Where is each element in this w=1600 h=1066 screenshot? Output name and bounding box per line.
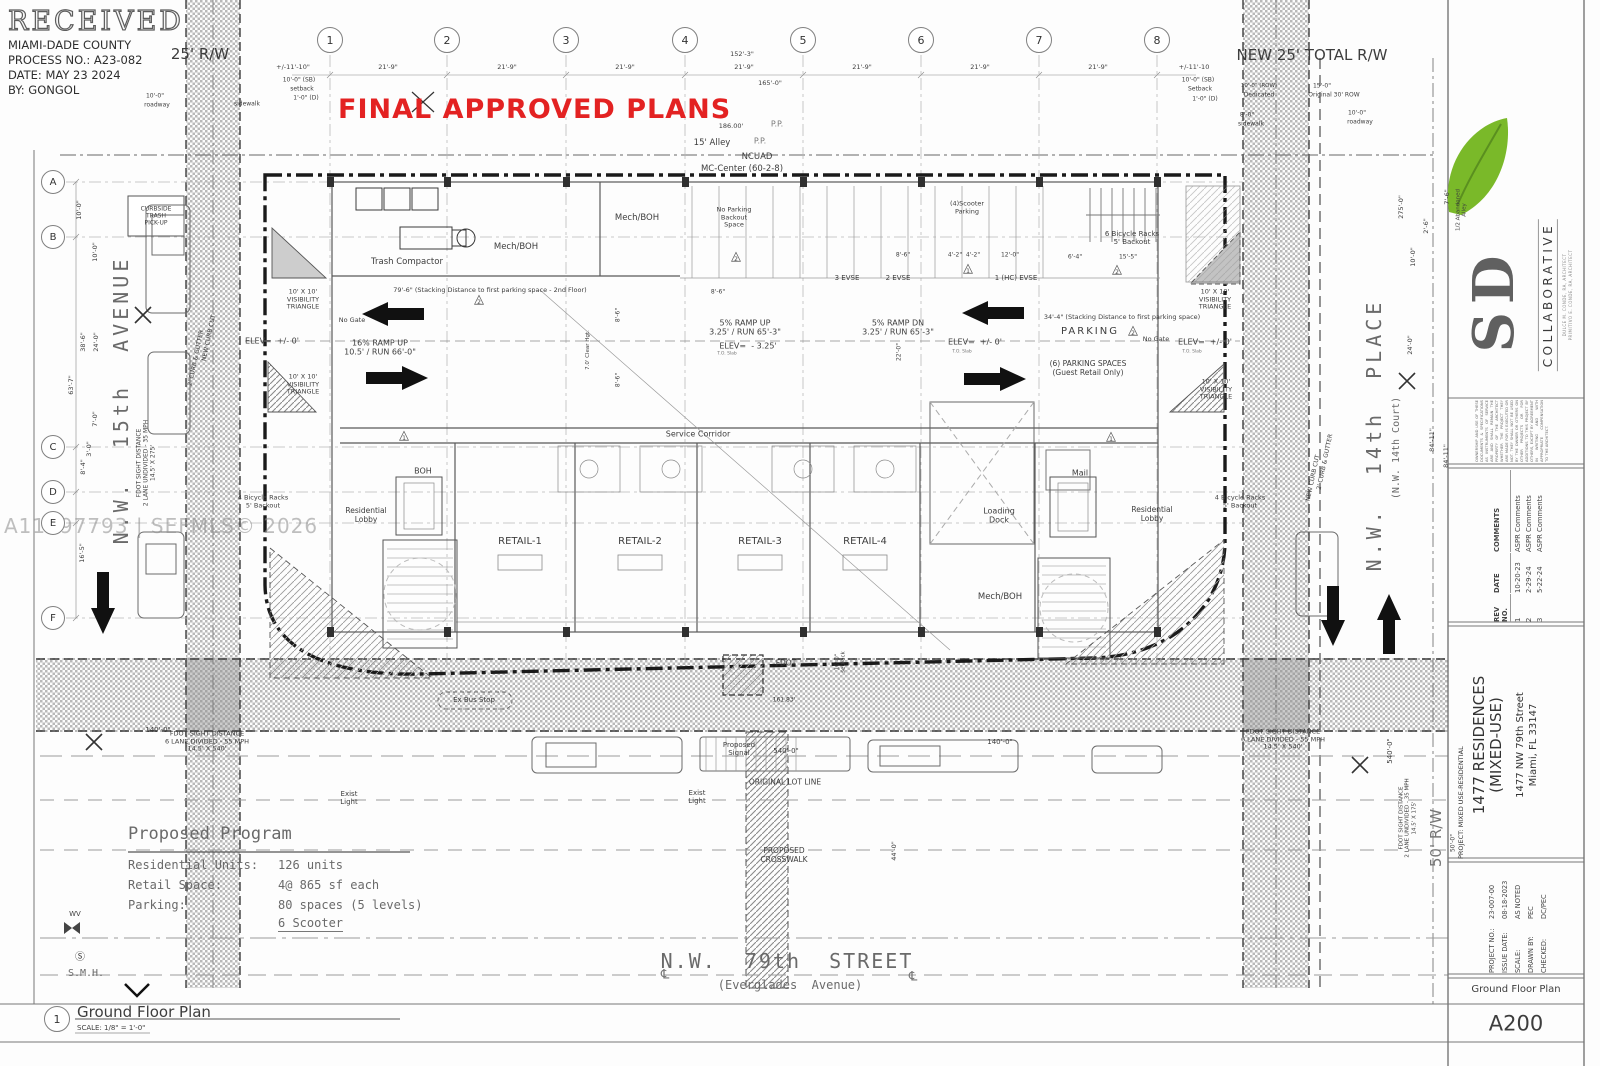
- visibility-triangle-label: 10' X 10' VISIBILITY TRIANGLE: [1199, 289, 1231, 312]
- keynote-2: △2: [1124, 325, 1142, 341]
- left-dim: 10'-0": [92, 242, 100, 262]
- received-stamp: RECEIVED MIAMI-DADE COUNTY PROCESS NO.: …: [8, 6, 184, 97]
- bus-stop-label: Ex Bus Stop: [453, 696, 495, 704]
- grid-col-7: 7: [1026, 27, 1052, 53]
- no-gate-label: No Gate: [1143, 336, 1169, 344]
- grid-row-e: E: [41, 511, 65, 535]
- exist-light-label: Exist Light: [688, 789, 705, 806]
- alley-length: 186.00': [719, 123, 744, 131]
- no-gate-label: No Gate: [339, 317, 365, 325]
- dim-bay: 21'-9": [1088, 64, 1108, 72]
- program-title: Proposed Program: [128, 824, 292, 844]
- visibility-triangle-label: 10' X 10' VISIBILITY TRIANGLE: [287, 289, 319, 312]
- visibility-triangle-label: 10' X 10' VISIBILITY TRIANGLE: [287, 374, 319, 397]
- program-label: Parking:: [128, 898, 186, 912]
- lot-length-label: 161.83': [773, 696, 796, 703]
- rw-right-label: NEW 25' TOTAL R/W: [1237, 47, 1388, 65]
- grid-col-2: 2: [434, 27, 460, 53]
- dim-44-0: 44'-0": [891, 841, 899, 861]
- dim-50-0: 50'-0": [1449, 834, 1456, 852]
- street-name-left: N.W. 15th AVENUE: [110, 256, 134, 545]
- grid-col-5: 5: [790, 27, 816, 53]
- boh-label: BOH: [414, 466, 432, 475]
- dim-8-6: 8'-6": [711, 288, 725, 295]
- dim-22-0: 22'-0": [895, 343, 902, 361]
- info-value: AS NOTED: [1514, 867, 1522, 919]
- evse-hc-label: 1 (HC) EVSE: [995, 274, 1038, 282]
- original-lot-line-label: ORIGINAL LOT LINE: [749, 779, 821, 788]
- info-label: CHECKED:: [1540, 919, 1548, 973]
- setback-sb-right: 10'-0" (SB): [1182, 76, 1215, 83]
- program-label: Residential Units:: [128, 858, 258, 872]
- water-valve-label: WV: [69, 910, 81, 918]
- info-label: SCALE:: [1514, 919, 1522, 973]
- alley-label: 15' Alley: [694, 138, 731, 148]
- roadway-left: roadway: [144, 101, 170, 108]
- stacking-79-note: 79'-6" (Stacking Distance to first parki…: [393, 287, 586, 295]
- dim-15-5: 15'-5": [1119, 253, 1137, 260]
- elev-neg-label: ELEV= - 3.25': [719, 341, 776, 350]
- rev-cell: 10-20-23: [1514, 553, 1522, 593]
- grid-row-a: A: [41, 170, 65, 194]
- fdot-label: FDOT: [776, 660, 797, 669]
- left-dim: 10'-0": [76, 200, 84, 220]
- project-address: 1477 NW 79th Street Miami, FL 33147: [1514, 631, 1540, 859]
- trash-compactor-label: Trash Compactor: [371, 257, 443, 267]
- orig-row-dim: 15'-0": [1313, 82, 1331, 89]
- plan-title: Ground Floor Plan: [77, 1004, 211, 1022]
- setback-d-right: 1'-0" (D): [1192, 95, 1217, 102]
- mail-label: Mail: [1072, 468, 1088, 477]
- ramp-up-5-label: 5% RAMP UP 3.25' / RUN 65'-3": [709, 319, 781, 338]
- info-label: DRAWN BY:: [1527, 919, 1535, 973]
- smh-label: S.M.H.: [68, 968, 104, 980]
- revision-table: REV NO. DATE COMMENTS 1 10-20-23 ASPR Co…: [1457, 470, 1579, 622]
- bike-racks-6-label: 6 Bicycle Racks 5' Backout: [1105, 230, 1159, 247]
- program-value: 80 spaces (5 levels): [278, 898, 423, 912]
- sheet-number: A200: [1489, 1012, 1543, 1037]
- evse-3-label: 3 EVSE: [835, 274, 860, 282]
- guest-parking-label: (6) PARKING SPACES (Guest Retail Only): [1050, 360, 1127, 378]
- stamp-date: DATE: MAY 23 2024: [8, 68, 184, 82]
- rev-header: REV NO.: [1493, 594, 1511, 622]
- logo-sd-text: SD: [1461, 247, 1527, 352]
- left-dim: 7'-0": [92, 411, 100, 426]
- bike-racks-4-label: 4 Bicycle Racks 5' Backout: [1215, 494, 1265, 509]
- residential-lobby-label: Residential Lobby: [1131, 506, 1172, 524]
- scooter-parking-label: (4)Scooter Parking: [950, 200, 984, 215]
- rev-cell: 5-22-24: [1536, 553, 1544, 593]
- stamp-process: PROCESS NO.: A23-082: [8, 53, 184, 67]
- visibility-triangle-label: 10' X 10' VISIBILITY TRIANGLE: [1200, 379, 1232, 402]
- fdot-sight-bottom-right: FDOT SIGHT DISTANCE 6 LANE DIVIDED - 55 …: [1241, 729, 1325, 752]
- program-value: 126 units: [278, 858, 343, 872]
- left-dim: 16'-5": [79, 543, 87, 563]
- dim-bay: 21'-9": [497, 64, 517, 72]
- grid-row-c: C: [41, 435, 65, 459]
- dim-overall-lower: 165'-0": [758, 80, 782, 88]
- grid-col-8: 8: [1144, 27, 1170, 53]
- right-dim: 24'-0": [1407, 335, 1415, 355]
- retail-2-label: RETAIL-2: [618, 536, 662, 548]
- stacking-34-note: 34'-4" (Stacking Distance to first parki…: [1044, 314, 1200, 322]
- proposed-crosswalk-label: PROPOSED CROSSWALK: [760, 847, 807, 865]
- project-type: PROJECT: MIXED USE-RESIDENTIAL: [1457, 631, 1465, 859]
- dim-540-right: 540'-0": [1386, 738, 1394, 763]
- street-court-right: (N.W. 14th Court): [1391, 397, 1403, 499]
- dim-12-0: 12'-0": [1001, 251, 1019, 258]
- roadway-dim-right: 10'-0": [1348, 109, 1366, 116]
- mech-boh-label: Mech/BOH: [615, 213, 659, 223]
- dim-8-6: 8'-6": [896, 251, 910, 258]
- ramp-dn-5-label: 5% RAMP DN 3.25' / RUN 65'-3": [862, 319, 934, 338]
- left-dim: 3'-0": [86, 441, 94, 456]
- final-approved-banner: FINAL APPROVED PLANS: [338, 94, 731, 125]
- logo-collaborative-text: COLLABORATIVE: [1538, 219, 1558, 371]
- grid-row-b: B: [41, 225, 65, 249]
- smh-symbol: Ⓢ: [75, 952, 85, 964]
- right-dim: 275'-0": [1398, 195, 1406, 219]
- rw-50-label: 50' R/W: [1428, 809, 1446, 867]
- curbside-trash-label: CURBSIDE TRASH PICK-UP: [141, 205, 172, 226]
- clear-height-note: 7.0' Clear Hgt.: [585, 330, 591, 370]
- to-slab-label: T.O. Slab: [1182, 349, 1202, 354]
- program-value: 4@ 865 sf each: [278, 878, 379, 892]
- setback-d-left: 1'-0" (D): [293, 94, 318, 101]
- architects-note: DULCE M. CONDE, RA, ARCHITECT PRIMITIVO …: [1562, 250, 1574, 341]
- keynote-1: △1: [959, 263, 977, 279]
- street-name-right: N.W. 14th PLACE: [1363, 299, 1387, 572]
- sidewalk-left: sidewalk: [234, 100, 260, 107]
- mech-boh-label: Mech/BOH: [494, 242, 538, 252]
- keynote-1: △1: [395, 430, 413, 446]
- to-slab-label: T.O. Slab: [952, 349, 972, 354]
- rev-cell: 2: [1525, 594, 1533, 622]
- grid-col-4: 4: [672, 27, 698, 53]
- info-label: PROJECT NO.:: [1488, 919, 1496, 973]
- received-text: RECEIVED: [8, 6, 184, 37]
- centerline-symbol: ℄: [661, 967, 669, 982]
- fdot-sight-bottom-left: FDOT SIGHT DISTANCE 6 LANE DIVIDED - 55 …: [165, 731, 249, 754]
- mc-center-label: MC-Center (60-2-8): [701, 164, 783, 174]
- bike-racks-4-label: 4 Bicycle Racks 5' Backout: [238, 494, 288, 509]
- dim-bay: 21'-9": [970, 64, 990, 72]
- elev-datum-label: ELEV= +/- 0': [1178, 337, 1232, 346]
- info-value: DC/PEC: [1540, 867, 1548, 919]
- info-label: ISSUE DATE:: [1501, 919, 1509, 973]
- ramp-16-label: 16% RAMP UP 10.5' / RUN 66'-0": [344, 339, 416, 358]
- grid-row-d: D: [41, 480, 65, 504]
- right-dim: 84'-11": [1429, 428, 1437, 452]
- rev-cell: 1: [1514, 594, 1522, 622]
- program-value: 6 Scooter: [278, 916, 343, 932]
- setback-sb-left: 10'-0" (SB): [283, 76, 316, 83]
- dim-bay: 21'-9": [378, 64, 398, 72]
- right-dim: 84'-11": [1443, 444, 1451, 468]
- sidewalk-dim-right: 8'-0": [1240, 111, 1254, 118]
- retail-3-label: RETAIL-3: [738, 536, 782, 548]
- left-dim: 8'-4": [80, 459, 88, 474]
- dim-4-2: 4'-2": [966, 251, 980, 258]
- plan-scale: SCALE: 1/8" = 1'-0": [77, 1024, 145, 1032]
- property-line: [265, 175, 1225, 674]
- keynote-2: △2: [1108, 264, 1126, 280]
- info-value: 23-007-00: [1488, 867, 1496, 919]
- sheet-info-table: PROJECT NO.: 23-007-00 ISSUE DATE: 08-18…: [1458, 865, 1578, 973]
- grid-row-f: F: [41, 606, 65, 630]
- grid-col-1: 1: [317, 27, 343, 53]
- retail-4-label: RETAIL-4: [843, 536, 887, 548]
- rev-header: COMMENTS: [1493, 470, 1511, 552]
- grid-col-3: 3: [553, 27, 579, 53]
- ncuad-label: NCUAD: [742, 152, 773, 162]
- rev-cell: 2-29-24: [1525, 553, 1533, 593]
- roadway-dim-left: 10'-0": [146, 92, 164, 99]
- left-dim: 24'-0": [93, 332, 101, 352]
- roadway-right: roadway: [1347, 118, 1373, 125]
- dim-8-6: 8'-6": [614, 373, 621, 387]
- proposed-signal-label: Proposed Signal: [723, 741, 755, 758]
- parking-label: PARKING: [1061, 326, 1119, 338]
- sidewalk-right: sidewalk: [1238, 120, 1264, 127]
- dim-bay: 21'-9": [852, 64, 872, 72]
- dim-540-bottom: 540'-0": [773, 747, 798, 755]
- setback-left: setback: [290, 85, 313, 92]
- plan-number-bubble: 1: [44, 1006, 70, 1032]
- row-dedication-dim: 10'-0" (ROW): [1241, 83, 1277, 89]
- setback-right: Setback: [1188, 85, 1212, 92]
- rev-cell: 3: [1536, 594, 1544, 622]
- ownership-note: OWNERSHIP AND USE OF THESE DOCUMENTS & S…: [1475, 400, 1567, 462]
- service-corridor-label: Service Corridor: [666, 429, 731, 438]
- sheet-name: Ground Floor Plan: [1471, 984, 1560, 996]
- abandoned-alley-note: 1/2 Abandoned Alley: [1456, 189, 1469, 231]
- residential-lobby-label: Residential Lobby: [345, 507, 386, 525]
- street-name-bottom: N.W. 79th STREET: [661, 950, 914, 974]
- right-dim: 2'-6": [1423, 218, 1431, 233]
- dim-140-right: 140'-0": [987, 738, 1012, 746]
- mech-boh-label: Mech/BOH: [978, 592, 1022, 602]
- row-dedicated: Dedicated: [1244, 91, 1275, 98]
- info-value: 08-18-2023: [1501, 867, 1509, 919]
- dim-8-6: 8'-6": [614, 308, 621, 322]
- keynote-2: △2: [470, 294, 488, 310]
- stamp-agency: MIAMI-DADE COUNTY: [8, 38, 184, 52]
- exist-light-label: Exist Light: [340, 790, 357, 807]
- rev-cell: ASPR Comments: [1514, 470, 1522, 552]
- power-pole: P.P.: [771, 119, 783, 128]
- right-dim: 7'-6": [1444, 189, 1452, 204]
- retail-1-label: RETAIL-1: [498, 536, 542, 548]
- orig-row: Original 30' ROW: [1308, 91, 1359, 98]
- right-dim: 10'-0": [1410, 247, 1418, 267]
- dim-bay: 21'-9": [734, 64, 754, 72]
- drawing-sheet: RECEIVED MIAMI-DADE COUNTY PROCESS NO.: …: [0, 0, 1600, 1066]
- left-dim: 63'-7": [68, 375, 76, 395]
- dim-4-2: 4'-2": [948, 251, 962, 258]
- dim-140-left: 140'-0": [145, 726, 170, 734]
- program-label: Retail Space:: [128, 878, 222, 892]
- dim-6-4: 6'-4": [1068, 253, 1082, 260]
- dim-end-left: +/-11'-10": [276, 64, 310, 72]
- left-dim: 38'-6": [80, 332, 88, 352]
- keynote-2: △2: [727, 251, 745, 267]
- centerline-symbol: ℄: [909, 969, 917, 984]
- project-block: PROJECT: MIXED USE-RESIDENTIAL 1477 RESI…: [1457, 631, 1579, 859]
- rev-cell: ASPR Comments: [1525, 470, 1533, 552]
- dim-overall-upper: 152'-3": [730, 51, 754, 59]
- power-pole: P.P.: [754, 136, 766, 145]
- info-value: PEC: [1527, 867, 1535, 919]
- fdot-sight-left: FDOT SIGHT DISTANCE 2 LANE UNDIVIDED - 3…: [135, 420, 156, 507]
- keynote-1: △1: [1102, 431, 1120, 447]
- fdot-sight-right: FDOT SIGHT DISTANCE 2 LANE UNDIVIDED - 3…: [1398, 778, 1417, 857]
- elev-datum-label: ELEV= +/- 0': [245, 336, 299, 345]
- dim-bay: 21'-9": [615, 64, 635, 72]
- to-slab-label: T.O. Slab: [717, 351, 737, 356]
- setback-rot-label: 10'-0" setback: [835, 651, 848, 672]
- elev-datum-label: ELEV= +/- 0': [948, 337, 1002, 346]
- no-parking-backout-label: No Parking Backout Space: [716, 207, 751, 230]
- rw-left-label: 25' R/W: [171, 46, 229, 64]
- rev-cell: ASPR Comments: [1536, 470, 1544, 552]
- grid-col-6: 6: [908, 27, 934, 53]
- street-alt-bottom: (Everglades Avenue): [718, 978, 863, 992]
- evse-2-label: 2 EVSE: [886, 274, 911, 282]
- loading-dock-label: Loading Dock: [983, 507, 1015, 526]
- rev-header: DATE: [1493, 553, 1511, 593]
- dim-end-right: +/-11'-10: [1179, 64, 1210, 72]
- project-name: 1477 RESIDENCES (MIXED-USE): [1471, 631, 1506, 859]
